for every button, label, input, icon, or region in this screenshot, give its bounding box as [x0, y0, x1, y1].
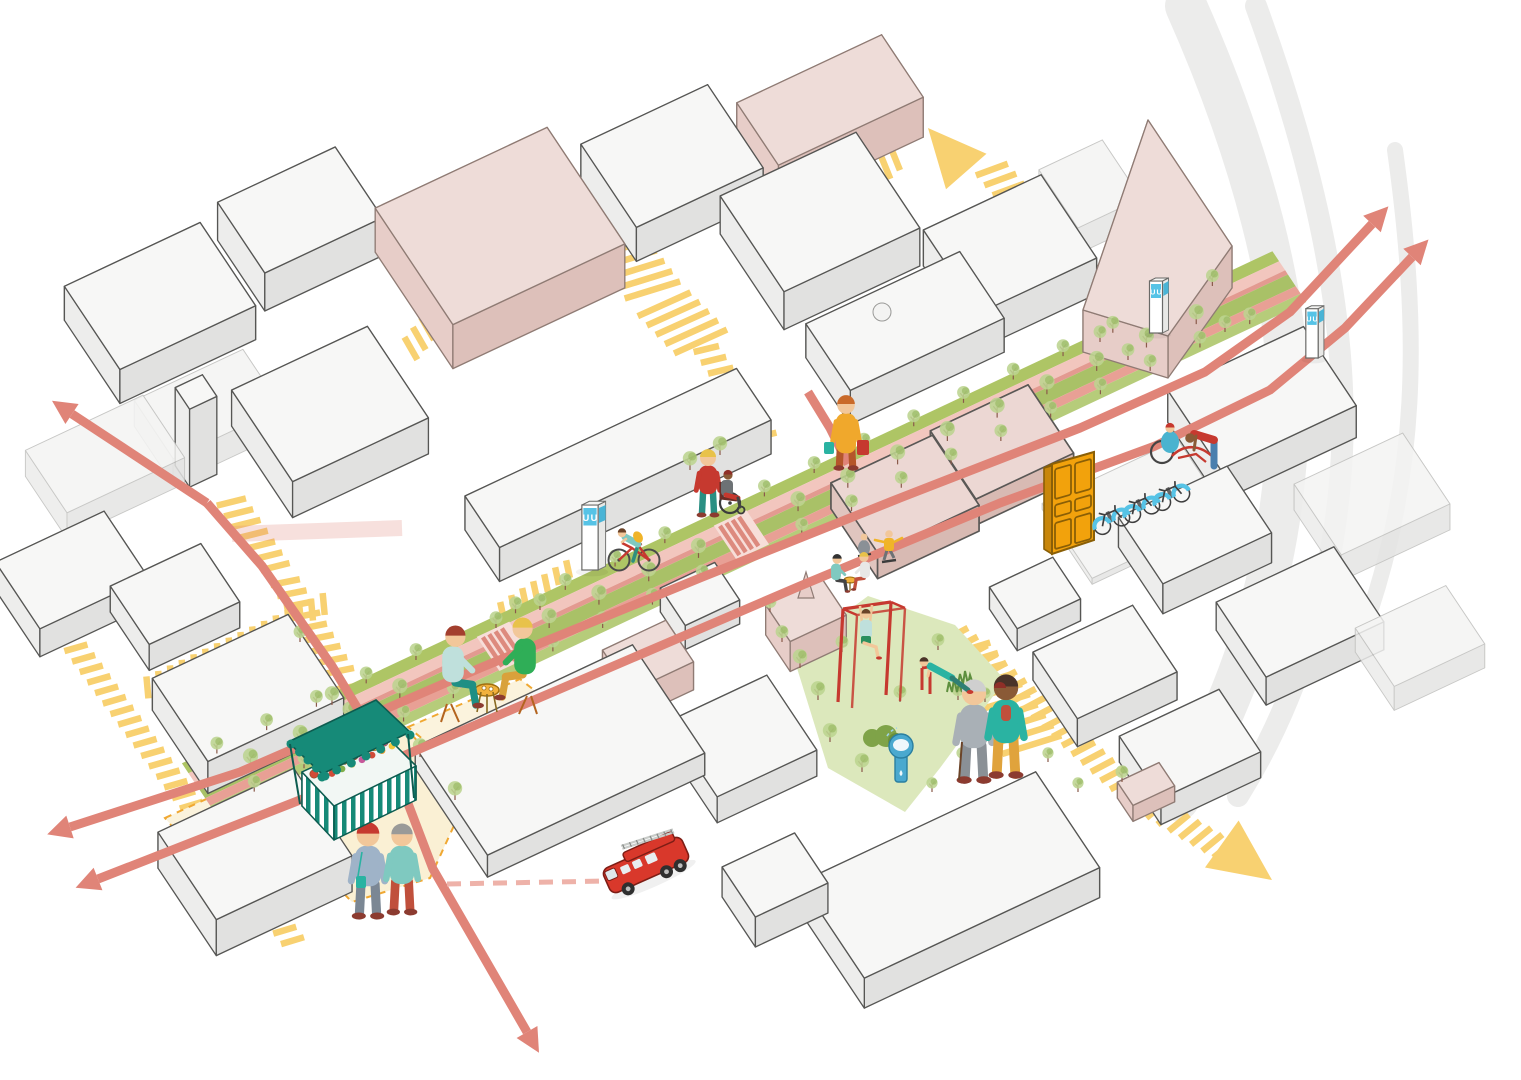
metro-entrance-pillar: UU — [1145, 278, 1171, 339]
faded-former-route — [232, 528, 402, 534]
open-door-symbol — [1044, 452, 1094, 554]
urban-plan-illustration: UUUUUU — [0, 0, 1521, 1080]
fire-engine — [593, 820, 698, 905]
isometric-city-map: UUUUUU — [0, 0, 1521, 1080]
seated-person — [831, 554, 850, 593]
metro-logo-letter: U — [591, 513, 598, 523]
metro-logo-letter: U — [1157, 288, 1162, 297]
emergency-access-dashed-route — [447, 881, 606, 884]
metro-entrance-pillar: UU — [1302, 306, 1327, 364]
metro-logo-letter: U — [1313, 316, 1318, 324]
tree — [1072, 777, 1083, 792]
dome-roof — [873, 303, 891, 321]
metro-logo-letter: U — [583, 513, 590, 523]
tree — [1042, 747, 1053, 762]
table-pair — [831, 552, 870, 593]
seated-person — [851, 552, 870, 591]
metro-logo-letter: U — [1150, 288, 1155, 297]
metro-logo-letter: U — [1306, 316, 1311, 324]
yellow-arrowhead — [1205, 821, 1272, 881]
tree — [926, 777, 937, 792]
yellow-arrowhead — [928, 128, 987, 189]
building-block — [232, 326, 429, 517]
building-block — [800, 772, 1099, 1008]
